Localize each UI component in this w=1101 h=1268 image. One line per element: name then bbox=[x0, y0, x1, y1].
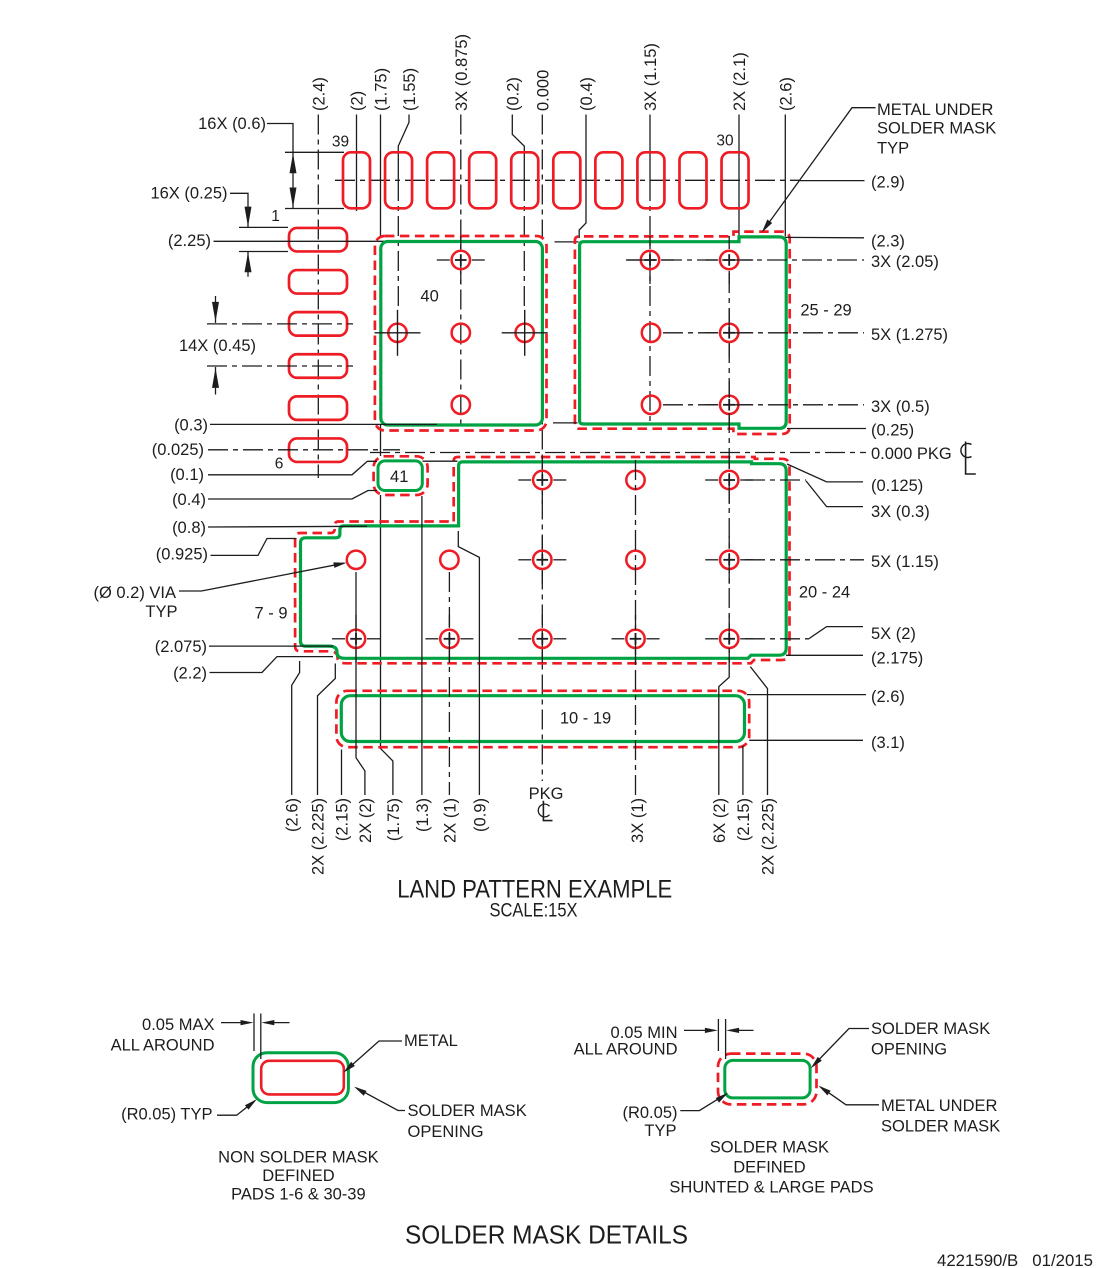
svg-text:40: 40 bbox=[420, 288, 438, 306]
svg-text:3X (0.3): 3X (0.3) bbox=[871, 503, 930, 521]
svg-text:SOLDER MASK: SOLDER MASK bbox=[710, 1138, 829, 1156]
svg-text:METAL: METAL bbox=[404, 1032, 458, 1050]
svg-text:(1.75): (1.75) bbox=[385, 798, 403, 841]
svg-text:TYP: TYP bbox=[145, 603, 177, 621]
svg-text:(0.1): (0.1) bbox=[170, 466, 204, 484]
svg-text:PADS 1-6 & 30-39: PADS 1-6 & 30-39 bbox=[231, 1186, 366, 1204]
svg-text:(0.025): (0.025) bbox=[152, 441, 204, 459]
svg-text:(R0.05): (R0.05) bbox=[622, 1104, 677, 1122]
svg-text:(2.3): (2.3) bbox=[871, 233, 905, 251]
svg-text:5X (1.275): 5X (1.275) bbox=[871, 326, 948, 344]
svg-text:(2.15): (2.15) bbox=[334, 798, 352, 841]
svg-text:(3.1): (3.1) bbox=[871, 734, 905, 752]
svg-text:10 - 19: 10 - 19 bbox=[560, 710, 611, 728]
svg-text:6X (2): 6X (2) bbox=[711, 798, 729, 843]
svg-text:(0.25): (0.25) bbox=[871, 422, 914, 440]
svg-text:0.000: 0.000 bbox=[534, 70, 552, 111]
svg-text:(0.925): (0.925) bbox=[156, 546, 208, 564]
svg-text:(0.125): (0.125) bbox=[871, 477, 923, 495]
svg-text:2X (2.1): 2X (2.1) bbox=[731, 52, 749, 111]
svg-text:2X (2.225): 2X (2.225) bbox=[760, 798, 778, 875]
svg-text:14X (0.45): 14X (0.45) bbox=[179, 337, 256, 355]
svg-text:3X (0.5): 3X (0.5) bbox=[871, 398, 930, 416]
svg-text:5X (1.15): 5X (1.15) bbox=[871, 553, 939, 571]
svg-text:3X (2.05): 3X (2.05) bbox=[871, 253, 939, 271]
svg-text:(0.4): (0.4) bbox=[578, 77, 596, 111]
svg-text:SOLDER MASK: SOLDER MASK bbox=[877, 120, 996, 138]
svg-text:SCALE:15X: SCALE:15X bbox=[490, 901, 578, 922]
svg-text:TYP: TYP bbox=[877, 140, 909, 158]
svg-text:41: 41 bbox=[390, 468, 408, 486]
svg-text:(2.075): (2.075) bbox=[155, 638, 207, 656]
svg-text:ALL AROUND: ALL AROUND bbox=[574, 1041, 678, 1059]
svg-text:LAND PATTERN EXAMPLE: LAND PATTERN EXAMPLE bbox=[397, 876, 672, 904]
svg-text:3X (0.875): 3X (0.875) bbox=[453, 34, 471, 111]
svg-text:(1.3): (1.3) bbox=[414, 798, 432, 832]
svg-text:(2.6): (2.6) bbox=[871, 688, 905, 706]
svg-text:20 - 24: 20 - 24 bbox=[799, 584, 850, 602]
svg-text:SOLDER MASK: SOLDER MASK bbox=[881, 1118, 1000, 1136]
svg-text:DEFINED: DEFINED bbox=[733, 1159, 806, 1177]
svg-text:SOLDER MASK DETAILS: SOLDER MASK DETAILS bbox=[405, 1220, 688, 1250]
svg-text:39: 39 bbox=[332, 134, 349, 151]
svg-text:OPENING: OPENING bbox=[871, 1041, 947, 1059]
svg-text:7 - 9: 7 - 9 bbox=[254, 605, 287, 623]
svg-text:(2.9): (2.9) bbox=[871, 174, 905, 192]
svg-text:SOLDER MASK: SOLDER MASK bbox=[408, 1102, 527, 1120]
svg-text:2X (2.225): 2X (2.225) bbox=[310, 798, 328, 875]
svg-text:(2.15): (2.15) bbox=[735, 798, 753, 841]
svg-text:(0.8): (0.8) bbox=[172, 519, 206, 537]
svg-text:(1.55): (1.55) bbox=[401, 68, 419, 111]
svg-text:30: 30 bbox=[716, 133, 734, 150]
svg-text:SHUNTED & LARGE PADS: SHUNTED & LARGE PADS bbox=[669, 1178, 873, 1196]
svg-text:0.05 MAX: 0.05 MAX bbox=[142, 1016, 214, 1034]
svg-text:(2.2): (2.2) bbox=[173, 664, 207, 682]
svg-text:(2.6): (2.6) bbox=[777, 77, 795, 111]
svg-text:(0.4): (0.4) bbox=[172, 491, 206, 509]
svg-text:2X (2): 2X (2) bbox=[357, 798, 375, 843]
svg-text:METAL UNDER: METAL UNDER bbox=[881, 1097, 998, 1115]
svg-text:SOLDER MASK: SOLDER MASK bbox=[871, 1020, 990, 1038]
svg-text:METAL UNDER: METAL UNDER bbox=[877, 101, 994, 119]
svg-text:2X (1): 2X (1) bbox=[441, 798, 459, 843]
svg-text:(Ø 0.2) VIA: (Ø 0.2) VIA bbox=[93, 584, 176, 602]
svg-text:0.05 MIN: 0.05 MIN bbox=[611, 1024, 678, 1042]
svg-text:(2.4): (2.4) bbox=[310, 77, 328, 111]
svg-text:(R0.05) TYP: (R0.05) TYP bbox=[121, 1106, 212, 1124]
svg-text:16X (0.25): 16X (0.25) bbox=[150, 185, 227, 203]
svg-text:TYP: TYP bbox=[644, 1122, 676, 1140]
svg-text:OPENING: OPENING bbox=[408, 1123, 484, 1141]
svg-text:25 - 29: 25 - 29 bbox=[800, 301, 851, 319]
svg-text:3X (1.15): 3X (1.15) bbox=[642, 43, 660, 111]
svg-text:(2): (2) bbox=[349, 91, 367, 111]
svg-text:16X (0.6): 16X (0.6) bbox=[198, 115, 266, 133]
svg-text:(2.25): (2.25) bbox=[168, 232, 211, 250]
svg-text:NON SOLDER MASK: NON SOLDER MASK bbox=[218, 1149, 378, 1167]
svg-text:DEFINED: DEFINED bbox=[262, 1167, 335, 1185]
svg-text:(1.75): (1.75) bbox=[373, 68, 391, 111]
svg-text:1: 1 bbox=[271, 208, 280, 225]
svg-text:ALL AROUND: ALL AROUND bbox=[111, 1037, 215, 1055]
svg-text:4221590/B 01/2015: 4221590/B 01/2015 bbox=[937, 1252, 1093, 1268]
svg-text:6: 6 bbox=[275, 456, 284, 473]
svg-text:(0.2): (0.2) bbox=[504, 77, 522, 111]
svg-text:3X (1): 3X (1) bbox=[629, 798, 647, 843]
svg-text:(2.6): (2.6) bbox=[284, 798, 302, 832]
svg-text:0.000 PKG: 0.000 PKG bbox=[871, 445, 952, 463]
svg-text:(0.9): (0.9) bbox=[471, 798, 489, 832]
svg-text:(2.175): (2.175) bbox=[871, 650, 923, 668]
svg-text:(0.3): (0.3) bbox=[174, 417, 208, 435]
svg-text:5X (2): 5X (2) bbox=[871, 625, 916, 643]
svg-text:PKG: PKG bbox=[529, 785, 564, 803]
